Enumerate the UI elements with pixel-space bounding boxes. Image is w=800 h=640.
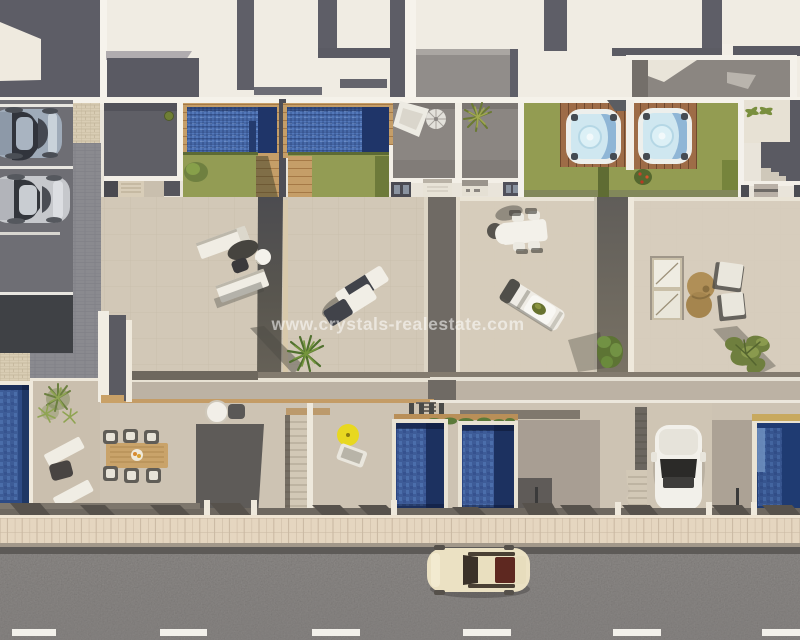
svg-text:www.crystals-realestate.com: www.crystals-realestate.com: [270, 314, 524, 334]
